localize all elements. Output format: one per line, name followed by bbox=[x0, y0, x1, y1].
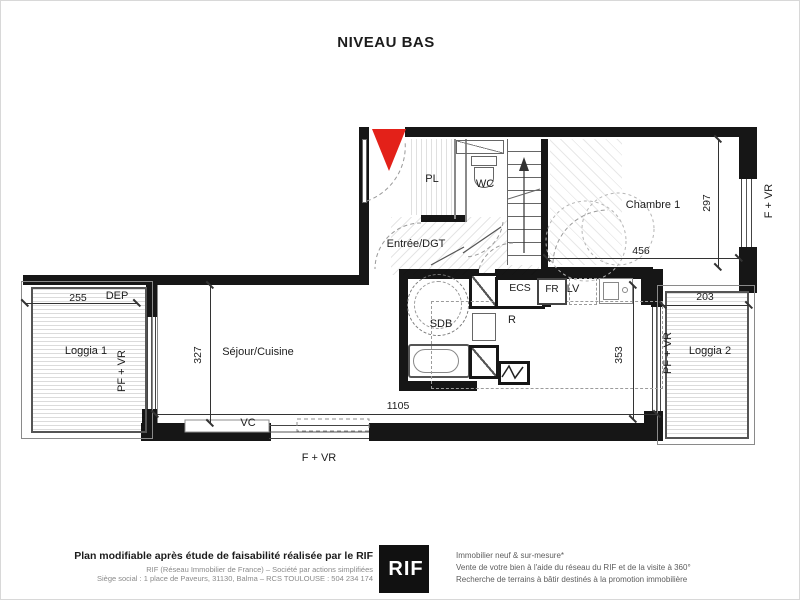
annotation-pf-vr-loggia1: PF + VR bbox=[116, 341, 132, 401]
room-label-entree: Entrée/DGT bbox=[356, 238, 476, 250]
room-label-sejour: Séjour/Cuisine bbox=[188, 346, 328, 358]
footer-right-line3: Recherche de terrains à bâtir destinés à… bbox=[456, 574, 687, 586]
dim-line-456 bbox=[547, 258, 739, 259]
room-label-lv: LV bbox=[561, 283, 585, 295]
annotation-f-vr-right: F + VR bbox=[763, 171, 779, 231]
dim-label-297: 297 bbox=[701, 173, 717, 233]
footer-address-line: Siège social : 1 place de Paveurs, 31130… bbox=[1, 574, 373, 583]
annotation-vc: VC bbox=[228, 417, 268, 429]
footer-right-line1: Immobilier neuf & sur-mesure* bbox=[456, 550, 564, 562]
dim-label-255: 255 bbox=[60, 292, 96, 304]
dim-label-456: 456 bbox=[611, 245, 671, 257]
floor-plan-page: NIVEAU BAS bbox=[0, 0, 800, 600]
annotation-f-vr-bottom: F + VR bbox=[269, 452, 369, 464]
room-label-pl: PL bbox=[412, 173, 452, 185]
annotation-pf-vr-loggia2: PF + VR bbox=[662, 323, 678, 383]
footer-bold-line: Plan modifiable après étude de faisabili… bbox=[1, 550, 373, 562]
vc-dashed-cabinet bbox=[297, 419, 369, 431]
zigzag-symbol bbox=[502, 366, 523, 378]
dim-line-297 bbox=[718, 139, 719, 267]
footer-right-line2: Vente de votre bien à l'aide du réseau d… bbox=[456, 562, 691, 574]
rif-logo: RIF bbox=[379, 545, 433, 593]
dim-label-353: 353 bbox=[613, 325, 629, 385]
dim-label-1105: 1105 bbox=[368, 400, 428, 412]
dim-line-353 bbox=[633, 285, 634, 419]
dim-label-327: 327 bbox=[192, 325, 208, 385]
annotation-dep: DEP bbox=[97, 290, 137, 302]
dim-line-1105 bbox=[155, 414, 657, 415]
dim-label-203: 203 bbox=[675, 291, 735, 303]
room-label-wc: WC bbox=[465, 178, 505, 190]
dim-line-203 bbox=[663, 305, 749, 306]
stair-arrow bbox=[508, 157, 540, 253]
room-label-chambre1: Chambre 1 bbox=[593, 199, 713, 211]
footer-company-line: RIF (Réseau Immobilier de France) – Soci… bbox=[1, 565, 373, 574]
room-label-r: R bbox=[502, 314, 522, 326]
room-label-sdb: SDB bbox=[411, 318, 471, 330]
